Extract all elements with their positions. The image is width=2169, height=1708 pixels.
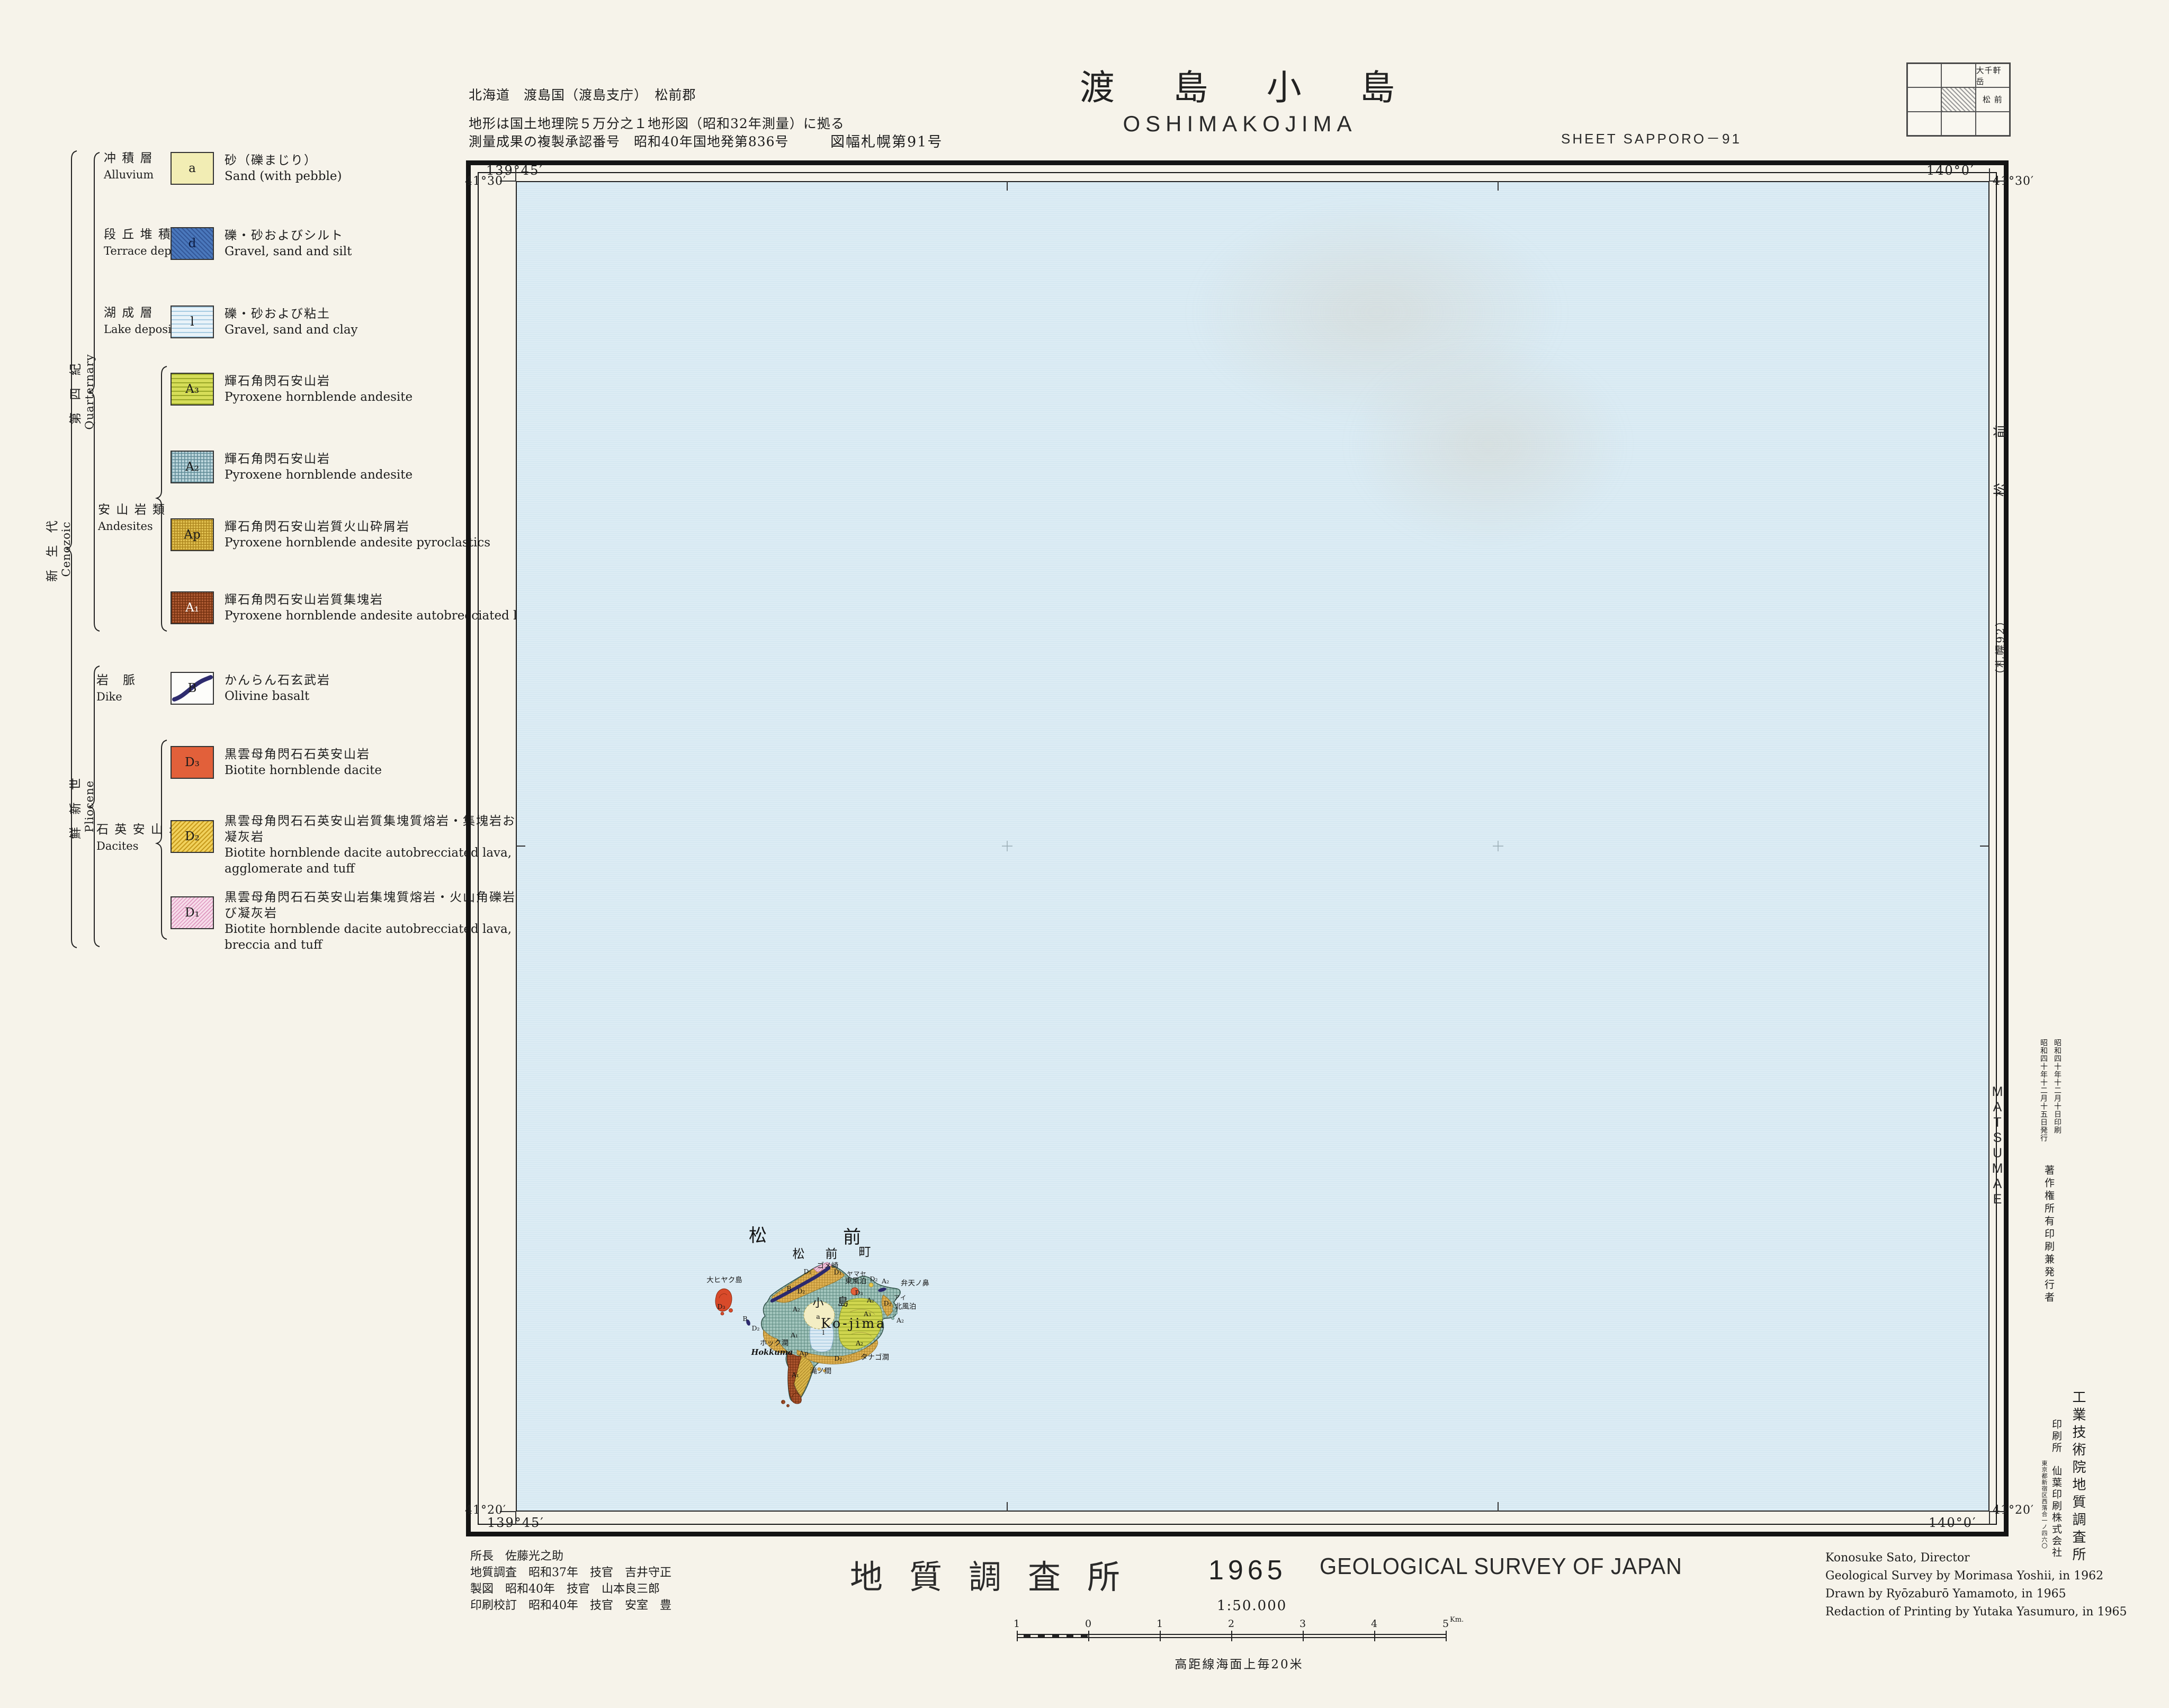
scale-num: 3 (1296, 1618, 1309, 1630)
map-label: 北風泊 (895, 1302, 917, 1311)
coord-br-lon: 140°0′ (1929, 1515, 1977, 1530)
index-cell (1976, 112, 2010, 136)
era-quarternary: 第 四 紀 Quarternary (65, 354, 96, 429)
map-label: A₂ (855, 1339, 863, 1347)
map-label: 町 (859, 1245, 871, 1259)
scale-num: 4 (1368, 1618, 1381, 1630)
era-pliocene: 鮮 新 世 Pliocene (65, 774, 96, 839)
swatch-a1: A₁ (171, 591, 214, 624)
credit-line: 所長 佐藤光之助 (470, 1548, 671, 1565)
map-label: A₁ (791, 1371, 799, 1379)
map-label: 島 (838, 1296, 849, 1308)
map-sheet: 北海道 渡島国（渡島支庁） 松前郡 地形は国土地理院５万分之１地形図（昭和32年… (0, 0, 2169, 1708)
map-label: ヤマセ (847, 1270, 867, 1278)
credit-line: 印刷校訂 昭和40年 技官 安室 豊 (470, 1597, 671, 1614)
index-cell-matsumae: 松 前 (1976, 87, 2010, 111)
map-label: 大ヒヤク島 (706, 1276, 742, 1284)
index-cell (1907, 87, 1941, 111)
map-label: D₃ (717, 1302, 725, 1310)
swatch-b: B (171, 672, 214, 705)
page-title-jp: 渡 島 小 島 (466, 59, 2009, 110)
agency-name-en: GEOLOGICAL SURVEY OF JAPAN (1320, 1553, 1682, 1580)
map-label: D₂ (834, 1354, 842, 1362)
swatch-d: d (171, 227, 214, 260)
index-cell (1941, 64, 1975, 87)
group-lake: 湖 成 層Lake deposits (104, 305, 182, 338)
map-label: B (742, 1315, 747, 1323)
map-label: D₂ (870, 1275, 877, 1283)
map-label: B (786, 1284, 791, 1292)
map-label: 松 (793, 1247, 805, 1261)
map-label: D₂ (751, 1324, 759, 1332)
credit-line: 地質調査 昭和37年 技官 吉井守正 (470, 1565, 671, 1581)
map-label: D₁ (833, 1268, 841, 1276)
swatch-l: l (171, 305, 214, 338)
index-cell (1907, 64, 1941, 87)
credit-line: Drawn by Ryōzaburō Yamamoto, in 1965 (1825, 1585, 2127, 1603)
map-label: D₃ (855, 1289, 863, 1297)
map-label: D₂ (797, 1287, 805, 1295)
swatch-a: a (171, 152, 214, 185)
map-scale: 1:50.000 (1217, 1598, 1287, 1614)
map-label: Hokkuma (751, 1348, 793, 1357)
matsumae-vertical: MATSUMAE (1989, 1084, 2005, 1207)
scale-num: 1 (1010, 1618, 1023, 1630)
scale-num: 1 (1153, 1618, 1166, 1630)
map-label: タナゴ澗 (861, 1353, 889, 1362)
group-andesites: 安 山 岩 類Andesites (98, 502, 166, 535)
agency-seal-script: 地質調査所 (850, 1550, 1146, 1598)
adjoining-sheet-char-mae: 前 (1990, 425, 2010, 438)
map-label: 小 (813, 1297, 824, 1309)
swatch-ap: Ap (171, 518, 214, 551)
printer-vertical: 印刷所 仙葉印刷株式会社 (2049, 1419, 2064, 1559)
coord-tl-lat: 41°30′ (465, 175, 506, 188)
print-date: 昭和四十年十二月十日印刷 (2052, 1039, 2063, 1176)
map-label: l (822, 1328, 824, 1336)
edition-dates: 昭和四十年十二月十日印刷 昭和四十年十二月十五日発行 (2035, 1039, 2063, 1176)
credit-line: Redaction of Printing by Yutaka Yasumuro… (1825, 1603, 2127, 1621)
adjoining-sheet-char-matsu: 松 (1990, 483, 2010, 497)
index-cell-daisengendake: 大千軒岳 (1976, 64, 2010, 87)
credit-line: 製図 昭和40年 技官 山本良三郎 (470, 1581, 671, 1597)
map-label: 前 (826, 1247, 838, 1261)
map-label: A₂ (866, 1296, 874, 1304)
coord-bl-lon: 139°45′ (487, 1515, 544, 1530)
scale-num: 0 (1082, 1618, 1095, 1630)
coord-tr-lon: 140°0′ (1926, 163, 1975, 178)
scale-bar: 1 0 1 2 3 4 5 Km. (1001, 1615, 1477, 1648)
map-label: D₂ (883, 1299, 891, 1307)
credits-right: Konosuke Sato, Director Geological Surve… (1825, 1549, 2127, 1621)
era-cenozoic: 新 生 代 Cenozoic (42, 516, 73, 582)
printer-address: 東京都新宿区西落合一ノ四六〇 (2040, 1460, 2048, 1549)
group-alluvium: 冲 積 層Alluvium (104, 150, 154, 183)
swatch-d3: D₃ (171, 746, 214, 779)
publisher-vertical: 工業技術院地質調査所 (2068, 1390, 2088, 1565)
publish-date: 昭和四十年十二月十五日発行 (2038, 1039, 2049, 1176)
group-dike: 岩 脈Dike (96, 672, 136, 705)
map-label: D₁ (803, 1267, 811, 1275)
credit-line: Konosuke Sato, Director (1825, 1549, 2127, 1567)
index-map-grid: 大千軒岳 松 前 (1906, 62, 2011, 137)
map-label: A₁ (790, 1331, 798, 1339)
map-label: a (816, 1313, 820, 1320)
swatch-d2: D₂ (171, 820, 214, 853)
map-label: アイ (894, 1294, 907, 1301)
index-cell-current-sheet (1941, 87, 1975, 111)
map-label: 前 (843, 1227, 862, 1248)
map-label: A₂ (792, 1305, 800, 1313)
map-label: 東風泊 (845, 1277, 867, 1286)
map-label: ホック澗 (760, 1339, 788, 1347)
credit-line: Geological Survey by Morimasa Yoshii, in… (1825, 1567, 2127, 1585)
contour-interval-note: 高距線海面上毎20米 (1001, 1654, 1477, 1672)
map-label: Ap (799, 1349, 808, 1357)
map-label: 弁天ノ鼻 (901, 1279, 929, 1288)
kojima-island-map: 松前松前町ゴメ崎D₁D₁ヤマセ東風泊D₂A₂弁天ノ鼻BD₂大ヒヤク島D₃D₃小島… (688, 1218, 953, 1408)
map-label: Ko-jima (821, 1316, 886, 1331)
swatch-a3: A₃ (171, 373, 214, 406)
copyright-vertical: 著作権所有印刷兼発行者 (2042, 1165, 2056, 1305)
coord-tr-lat: 41°30′ (1993, 175, 2034, 188)
sapporo-ref: （札幌92） (1992, 614, 2007, 679)
map-label: 松 (749, 1225, 768, 1246)
coord-br-lat: 41°20′ (1993, 1504, 2034, 1517)
map-label: A₂ (881, 1277, 889, 1285)
page-title-en: OSHIMAKOJIMA (466, 111, 2009, 137)
index-cell (1941, 112, 1975, 136)
swatch-a2: A₂ (171, 451, 214, 483)
scale-num: 2 (1225, 1618, 1238, 1630)
index-cell (1907, 112, 1941, 136)
sheet-number-en: SHEET SAPPORO－91 (1561, 128, 1742, 148)
map-label: A₂ (896, 1316, 904, 1324)
scale-unit: Km. (1450, 1616, 1464, 1624)
swatch-d1: D₁ (171, 896, 214, 929)
map-label: 滝ノ間 (810, 1367, 832, 1376)
publication-year: 1965 (1208, 1554, 1287, 1586)
credits-left: 所長 佐藤光之助 地質調査 昭和37年 技官 吉井守正 製図 昭和40年 技官 … (470, 1548, 671, 1614)
